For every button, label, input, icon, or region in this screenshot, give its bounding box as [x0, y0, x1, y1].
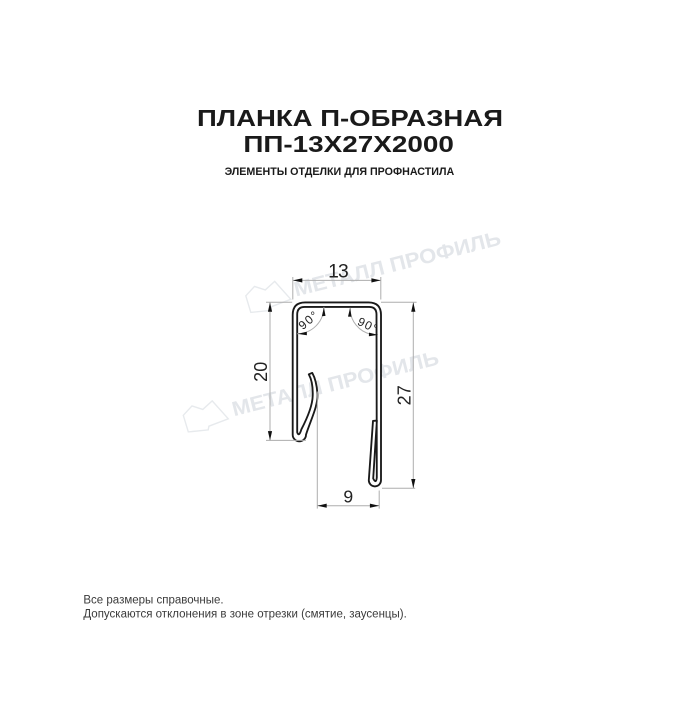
svg-text:ПЛАНКА П-ОБРАЗНАЯ: ПЛАНКА П-ОБРАЗНАЯ: [197, 105, 503, 131]
svg-text:27: 27: [395, 385, 415, 405]
svg-text:90°: 90°: [296, 307, 322, 332]
svg-text:Допускаются отклонения в зоне: Допускаются отклонения в зоне отрезки (с…: [83, 609, 406, 621]
svg-text:ПП-13Х27Х2000: ПП-13Х27Х2000: [243, 131, 454, 157]
svg-text:13: 13: [328, 261, 348, 282]
svg-text:МЕТАЛЛ ПРОФИЛЬ: МЕТАЛЛ ПРОФИЛЬ: [230, 347, 442, 421]
svg-text:МЕТАЛЛ ПРОФИЛЬ: МЕТАЛЛ ПРОФИЛЬ: [292, 227, 504, 301]
svg-text:Все размеры справочные.: Все размеры справочные.: [83, 595, 223, 607]
svg-text:20: 20: [251, 362, 271, 382]
svg-text:ЭЛЕМЕНТЫ ОТДЕЛКИ ДЛЯ ПРОФНАСТИ: ЭЛЕМЕНТЫ ОТДЕЛКИ ДЛЯ ПРОФНАСТИЛА: [225, 166, 455, 178]
svg-text:9: 9: [343, 487, 353, 507]
